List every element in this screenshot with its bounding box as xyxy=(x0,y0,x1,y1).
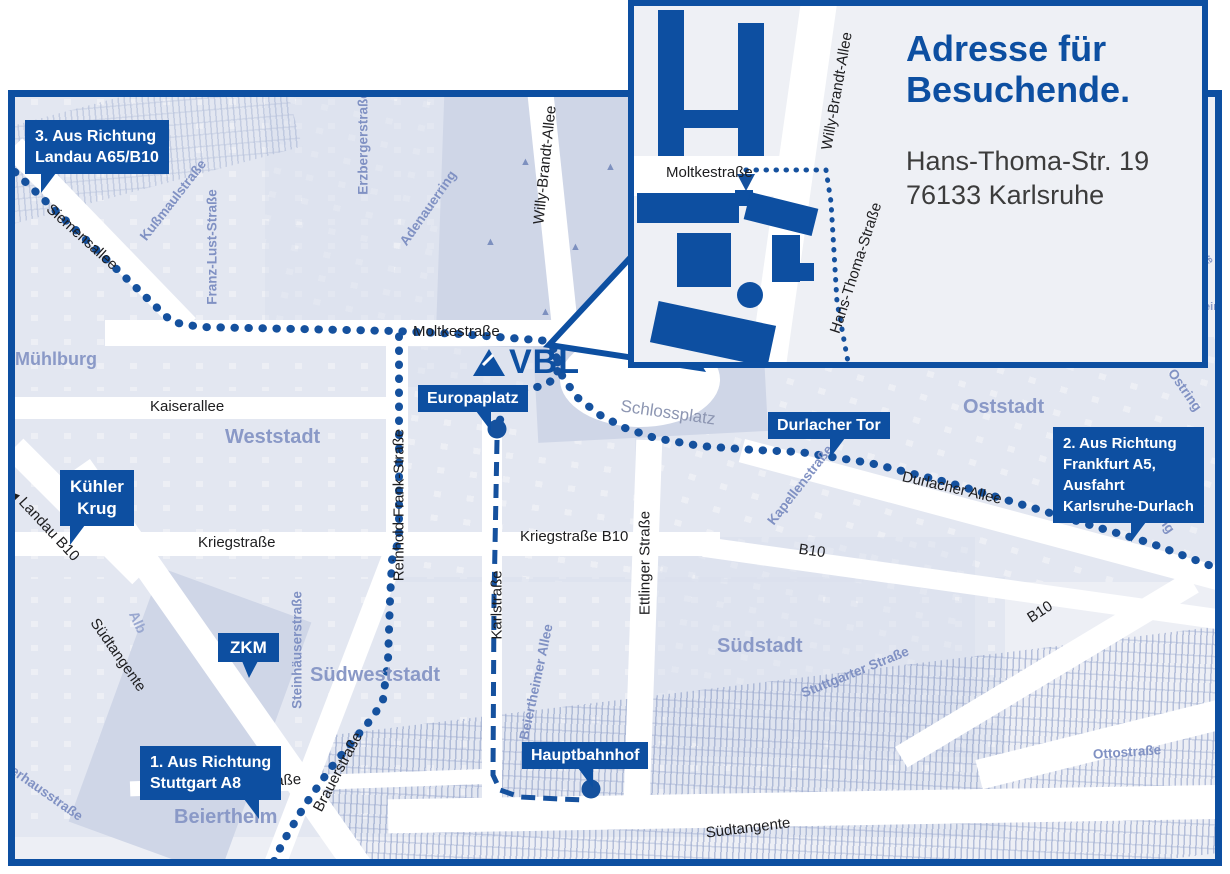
callout-hauptbahnhof: Hauptbahnhof xyxy=(522,742,648,769)
street-label-franz-lust-strasse: Franz-Lust-Straße xyxy=(205,189,220,305)
callout-from-stuttgart: 1. Aus Richtung Stuttgart A8 xyxy=(140,746,281,800)
street-label-karlstrasse: Karlstraße xyxy=(489,570,506,639)
vbl-logo-triangle-icon xyxy=(473,349,505,376)
callout-from-frankfurt-line1: 2. Aus Richtung xyxy=(1063,433,1194,454)
callout-from-frankfurt: 2. Aus Richtung Frankfurt A5, Ausfahrt K… xyxy=(1053,427,1204,523)
callout-kuehler-krug: Kühler Krug xyxy=(60,470,134,526)
inset-title-line2: Besuchende. xyxy=(906,69,1130,110)
callout-from-landau-line2: Landau A65/B10 xyxy=(35,147,159,168)
callout-tail xyxy=(830,438,845,458)
street-label-kriegstrasse: Kriegstraße xyxy=(198,534,276,551)
callout-tail xyxy=(578,768,593,788)
callout-tail xyxy=(41,173,56,193)
tree-icon: ▲ xyxy=(485,237,496,248)
tree-icon: ▲ xyxy=(605,162,616,173)
callout-tail xyxy=(244,799,259,819)
inset-detail-map: Moltkestraße Willy-Brandt-Allee Hans-Tho… xyxy=(628,0,1208,368)
callout-from-frankfurt-line2: Frankfurt A5, xyxy=(1063,454,1194,475)
landau-direction-arrow-icon: ◀ xyxy=(8,489,21,502)
street-label-ettlinger-strasse: Ettlinger Straße xyxy=(637,511,654,615)
callout-tail xyxy=(476,411,491,431)
street-label-kriegstrasse-b10: Kriegstraße B10 xyxy=(520,528,628,545)
callout-tail xyxy=(1131,522,1146,542)
callout-from-frankfurt-line4: Karlsruhe-Durlach xyxy=(1063,496,1194,517)
district-label-weststadt: Weststadt xyxy=(225,426,320,449)
street-label-kaiserallee: Kaiserallee xyxy=(150,398,224,415)
callout-from-landau: 3. Aus Richtung Landau A65/B10 xyxy=(25,120,169,174)
district-label-beiertheim: Beiertheim xyxy=(174,806,277,829)
inset-title-line1: Adresse für xyxy=(906,28,1130,69)
district-label-oststadt: Oststadt xyxy=(963,396,1044,419)
callout-hauptbahnhof-label: Hauptbahnhof xyxy=(531,745,639,766)
inset-street-label-moltkestrasse: Moltkestraße xyxy=(666,164,753,181)
inset-approach-route xyxy=(746,170,848,362)
callout-kuehler-krug-line1: Kühler xyxy=(70,476,124,498)
callout-durlacher-tor: Durlacher Tor xyxy=(768,412,890,439)
street-label-reinhold-frank-strasse: Reinhold-Frank-Straße xyxy=(391,429,408,582)
callout-tail xyxy=(70,525,85,545)
inset-address-line2: 76133 Karlsruhe xyxy=(906,178,1149,212)
inset-address-line1: Hans-Thoma-Str. 19 xyxy=(906,144,1149,178)
inset-title: Adresse für Besuchende. xyxy=(906,28,1130,110)
street-label-erzbergerstrasse: Erzbergerstraße xyxy=(356,91,371,195)
street-label-moltkestrasse: Moltkestraße xyxy=(413,323,500,340)
tree-icon: ▲ xyxy=(520,157,531,168)
callout-durlacher-tor-label: Durlacher Tor xyxy=(777,415,881,436)
callout-kuehler-krug-line2: Krug xyxy=(70,498,124,520)
district-label-suedweststadt: Südweststadt xyxy=(310,664,440,687)
callout-europaplatz: Europaplatz xyxy=(418,385,528,412)
district-label-suedstadt: Südstadt xyxy=(717,635,803,658)
page: ▲ ▲ ▲ ▲ ▲ ▲ ▲ Siemensallee Moltkestraße … xyxy=(0,0,1230,874)
district-label-muehlburg: Mühlburg xyxy=(15,349,97,370)
inset-address: Hans-Thoma-Str. 19 76133 Karlsruhe xyxy=(906,144,1149,212)
callout-from-stuttgart-line1: 1. Aus Richtung xyxy=(150,752,271,773)
callout-from-frankfurt-line3: Ausfahrt xyxy=(1063,475,1194,496)
callout-from-stuttgart-line2: Stuttgart A8 xyxy=(150,773,271,794)
street-label-steinhaeuserstrasse: Steinhäuserstraße xyxy=(290,591,305,709)
street-label-b10-east: B10 xyxy=(798,541,827,562)
callout-europaplatz-label: Europaplatz xyxy=(427,388,519,409)
callout-zkm: ZKM xyxy=(218,633,279,662)
callout-zkm-label: ZKM xyxy=(230,637,267,658)
callout-from-landau-line1: 3. Aus Richtung xyxy=(35,126,159,147)
callout-tail xyxy=(242,661,258,678)
